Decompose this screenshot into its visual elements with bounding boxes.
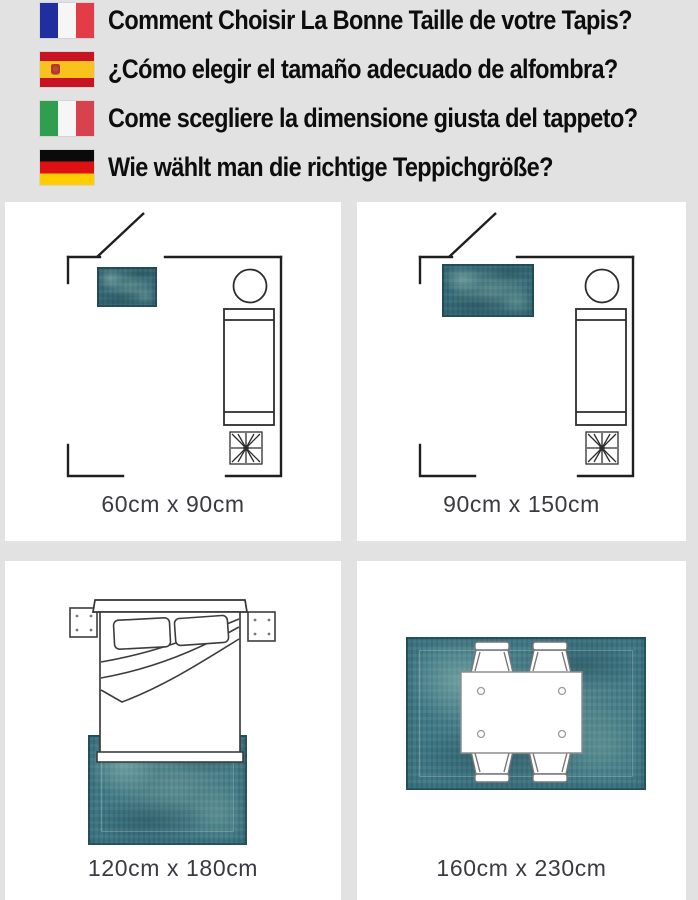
rug-90x150 — [442, 264, 534, 317]
size-caption-160x230: 160cm x 230cm — [357, 855, 686, 882]
bedroom-top-view — [5, 561, 341, 851]
banner-row-italian: Come scegliere la dimensione giusta del … — [40, 100, 698, 136]
panel-room-90x150: 90cm x 150cm — [357, 202, 686, 541]
sofa — [576, 309, 626, 425]
dining-table — [461, 672, 582, 753]
germany-flag-icon — [40, 150, 94, 185]
rug-60x90 — [97, 267, 157, 307]
side-table — [586, 270, 619, 303]
pillow-right — [174, 615, 229, 646]
footboard — [97, 752, 243, 762]
nightstand-right — [248, 612, 275, 641]
question-italian: Come scegliere la dimensione giusta del … — [108, 103, 637, 134]
headboard — [93, 600, 247, 612]
panel-dining-160x230: 160cm x 230cm — [357, 561, 686, 900]
dining-table-top-view — [357, 561, 686, 851]
potted-plant — [586, 432, 618, 464]
open-door — [449, 213, 496, 257]
chair-top-right — [529, 642, 571, 673]
sofa — [224, 309, 274, 425]
chair-bottom-right — [529, 751, 571, 782]
panel-room-60x90: 60cm x 90cm — [5, 202, 341, 541]
room-floorplan — [5, 202, 341, 487]
spain-flag-icon — [40, 52, 94, 87]
language-banner: Comment Choisir La Bonne Taille de votre… — [0, 0, 698, 202]
chair-bottom-left — [471, 751, 513, 782]
room-floorplan — [357, 202, 686, 487]
chair-top-left — [471, 642, 513, 673]
italy-flag-icon — [40, 101, 94, 136]
banner-row-spanish: ¿Cómo elegir el tamaño adecuado de alfom… — [40, 51, 694, 87]
side-table — [234, 270, 267, 303]
size-caption-60x90: 60cm x 90cm — [5, 491, 341, 518]
size-caption-120x180: 120cm x 180cm — [5, 855, 341, 882]
rug-size-guide: Comment Choisir La Bonne Taille de votre… — [0, 0, 698, 900]
potted-plant — [230, 432, 262, 464]
panel-bedroom-120x180: 120cm x 180cm — [5, 561, 341, 900]
question-spanish: ¿Cómo elegir el tamaño adecuado de alfom… — [108, 54, 618, 85]
pillow-left — [113, 618, 170, 650]
france-flag-icon — [40, 3, 94, 38]
size-caption-90x150: 90cm x 150cm — [357, 491, 686, 518]
question-german: Wie wählt man die richtige Teppichgröße? — [108, 152, 553, 183]
question-french: Comment Choisir La Bonne Taille de votre… — [108, 5, 632, 36]
open-door — [97, 213, 144, 257]
banner-row-french: Comment Choisir La Bonne Taille de votre… — [40, 2, 698, 38]
banner-row-german: Wie wählt man die richtige Teppichgröße? — [40, 149, 619, 185]
